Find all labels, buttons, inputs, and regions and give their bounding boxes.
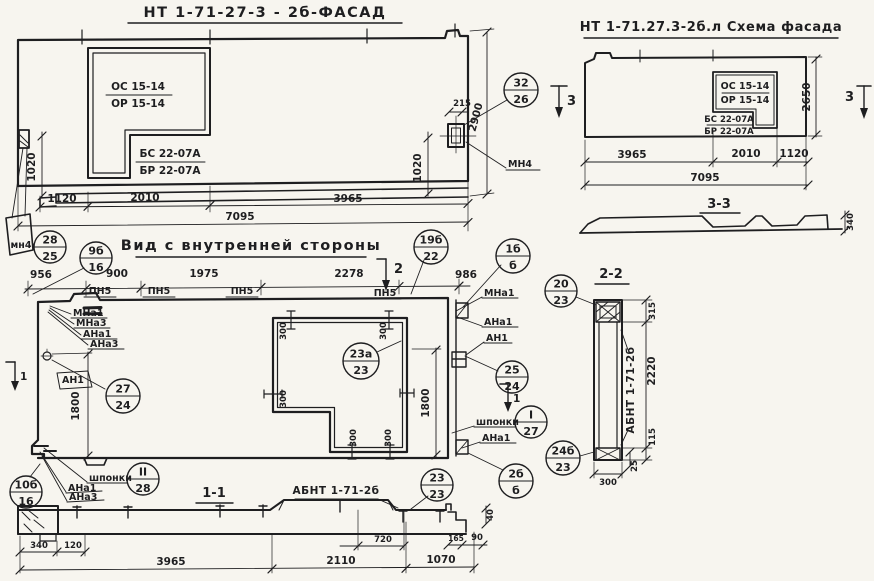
svg-text:1800: 1800 [70,391,82,420]
section-marker-3-left: 3 [551,86,576,118]
svg-text:II: II [139,466,147,479]
abnt-label: АБНТ 1-71-2б [292,485,379,497]
inner-view-drawing: Вид с внутренней стороны 956 900 2278 19… [6,238,520,503]
svg-text:ПН5: ПН5 [231,286,254,297]
svg-text:27: 27 [115,383,130,396]
svg-text:23: 23 [555,461,570,474]
view-dim-1800-left: 1800 [52,350,92,460]
svg-text:1: 1 [513,393,520,405]
svg-text:БР 22-07А: БР 22-07А [704,127,754,137]
svg-text:165: 165 [448,534,464,543]
facade-window-label-or: ОР 15-14 [111,98,165,110]
svg-text:ПН5: ПН5 [148,286,171,297]
svg-text:I: I [529,409,533,422]
callout-32-26: 32 26 [504,73,538,107]
facade-panel-outline [18,30,468,186]
facade-window-label-br: БР 22-07А [139,165,201,177]
svg-text:б: б [509,259,517,272]
callout-I-27: I 27 [515,406,547,438]
callout-9b-16: 9б 16 [80,242,112,274]
schema-title: НТ 1-71.27.3-2б.л Схема фасада [580,20,842,35]
svg-text:БС 22-07А: БС 22-07А [704,115,754,125]
svg-text:ПН5: ПН5 [89,286,112,297]
svg-text:956: 956 [30,269,52,281]
svg-text:300: 300 [279,390,289,408]
svg-text:шпонки: шпонки [476,417,519,428]
svg-text:26: 26 [513,93,529,106]
callout-25-24: 25 24 [496,361,528,393]
svg-text:3965: 3965 [156,556,185,568]
svg-text:ОР 15-14: ОР 15-14 [721,95,770,106]
svg-text:7095: 7095 [690,172,719,184]
svg-text:10б: 10б [15,479,38,492]
section-1-1-label: 1-1 [202,486,226,501]
svg-text:2110: 2110 [326,555,355,567]
view-callout-leaders [30,242,503,477]
svg-text:20: 20 [553,278,569,291]
svg-text:23: 23 [353,364,368,377]
svg-text:300: 300 [379,322,389,340]
facade-window-label-bs: БС 22-07А [139,148,201,160]
svg-text:315: 315 [648,302,658,320]
callout-20-23: 20 23 [545,275,577,307]
svg-text:90: 90 [471,533,483,543]
facade-mn4-label: МН4 [508,159,532,170]
svg-text:28: 28 [135,482,150,495]
facade-dim-215: 215 [453,99,471,109]
callout-II-28: II 28 [127,463,159,495]
callout-1b-b: 1б б [496,239,530,273]
svg-text:1975: 1975 [189,268,218,280]
callout-10b-16: 10б 16 [10,476,42,508]
callout-19b-22: 19б 22 [414,230,448,264]
svg-text:1120: 1120 [47,193,76,205]
svg-text:б: б [512,484,520,497]
svg-text:23: 23 [553,294,568,307]
svg-text:1: 1 [20,371,27,383]
facade-left-embed: мн4 [6,130,33,255]
svg-text:3: 3 [845,90,854,105]
svg-text:2278: 2278 [334,268,363,280]
svg-text:900: 900 [106,268,128,280]
svg-text:19б: 19б [420,234,443,247]
schema-drawing: НТ 1-71.27.3-2б.л Схема фасада ОС 15-14 … [580,20,871,235]
callout-24b-23: 24б 23 [546,441,580,475]
facade-mn4-small-label: мн4 [11,240,32,251]
view-right-embeds [452,303,468,454]
svg-text:22: 22 [423,250,438,263]
svg-text:2010: 2010 [130,192,159,204]
svg-text:300: 300 [384,429,394,447]
view-title: Вид с внутренней стороны [121,238,381,254]
svg-text:25: 25 [504,364,519,377]
svg-text:986: 986 [455,269,477,281]
svg-text:2: 2 [394,262,403,277]
svg-text:23: 23 [429,472,444,485]
schema-panel-outline [585,53,806,137]
svg-text:3: 3 [567,94,576,109]
section22-panel [594,300,622,460]
svg-text:340: 340 [30,541,48,551]
svg-text:300: 300 [279,322,289,340]
svg-text:1120: 1120 [779,148,808,160]
svg-text:115: 115 [648,428,658,446]
svg-text:9б: 9б [88,245,104,258]
section-2-2: 2-2 АБНТ 1-71-2б 315 2220 115 25 300 [576,267,658,488]
svg-text:2220: 2220 [646,356,658,385]
facade-dim-2900: 2900 [467,28,494,198]
svg-text:23а: 23а [350,348,373,361]
svg-text:23: 23 [429,488,444,501]
svg-text:27: 27 [523,425,538,438]
svg-text:МНа1: МНа1 [484,288,514,299]
svg-text:1б: 1б [505,243,521,256]
drawing-sheet: НТ 1-71-27-3 - 2б-ФАСАД ОС 15-14 ОР 15-1… [0,0,874,581]
svg-text:АНа1: АНа1 [482,433,510,444]
section-3-3-label: 3-3 [707,197,731,212]
svg-text:АН1: АН1 [486,333,508,344]
svg-text:24б: 24б [552,445,575,458]
svg-text:300: 300 [349,429,359,447]
section-2-2-label: 2-2 [599,267,623,282]
svg-text:3965: 3965 [617,149,646,161]
drawing-canvas: НТ 1-71-27-3 - 2б-ФАСАД ОС 15-14 ОР 15-1… [0,0,874,581]
svg-text:2650: 2650 [801,82,813,111]
svg-text:300: 300 [599,478,617,488]
callout-27-24: 27 24 [106,379,140,413]
facade-drawing: НТ 1-71-27-3 - 2б-ФАСАД ОС 15-14 ОР 15-1… [6,5,540,255]
svg-text:2010: 2010 [731,148,760,160]
section-marker-1-left: 1 [6,362,27,391]
svg-text:1070: 1070 [426,554,455,566]
section11-dims: 340 120 720 3965 2110 1070 165 90 40 [16,504,496,574]
facade-window-label-os: ОС 15-14 [111,81,165,93]
svg-text:7095: 7095 [225,211,254,223]
view-left-labels: МНа1 МНа3 АНа1 АНа3 АН1 [48,306,124,389]
callout-2b-b: 2б б [499,464,533,498]
svg-text:1020: 1020 [412,153,424,182]
svg-text:720: 720 [374,535,392,545]
svg-text:340: 340 [846,213,856,231]
svg-text:120: 120 [64,541,82,551]
callout-23a-23: 23а 23 [343,343,379,379]
facade-title: НТ 1-71-27-3 - 2б-ФАСАД [144,5,387,21]
svg-text:АН1: АН1 [62,375,84,386]
svg-text:1020: 1020 [26,152,38,181]
svg-text:16: 16 [88,261,104,274]
facade-right-embed: 215 МН4 [440,99,540,170]
svg-text:3965: 3965 [333,193,362,205]
svg-text:16: 16 [18,495,34,508]
svg-text:АНа3: АНа3 [90,339,118,350]
section-3-3: 3-3 340 [580,197,856,235]
abnt-label-vertical: АБНТ 1-71-2б [625,346,637,433]
schema-dim-2650: 2650 [801,55,822,139]
svg-text:28: 28 [42,234,57,247]
callout-28-25: 28 25 [34,231,66,263]
svg-text:25: 25 [630,460,640,472]
svg-text:32: 32 [513,77,528,90]
view-bottomleft-labels: шпонки АНа1 АНа3 [40,448,132,503]
svg-text:24: 24 [115,399,131,412]
svg-text:АНа1: АНа1 [484,317,512,328]
view-dim-1800-right: 1800 [412,346,441,459]
callout-23-23: 23 23 [421,469,453,501]
svg-text:24: 24 [504,380,520,393]
svg-text:25: 25 [42,250,57,263]
section-marker-3-right: 3 [845,86,871,119]
svg-text:2б: 2б [508,468,524,481]
svg-text:1800: 1800 [420,388,432,417]
svg-text:ОС 15-14: ОС 15-14 [721,81,770,92]
svg-text:40: 40 [486,509,496,521]
svg-text:МНа3: МНа3 [76,318,106,329]
